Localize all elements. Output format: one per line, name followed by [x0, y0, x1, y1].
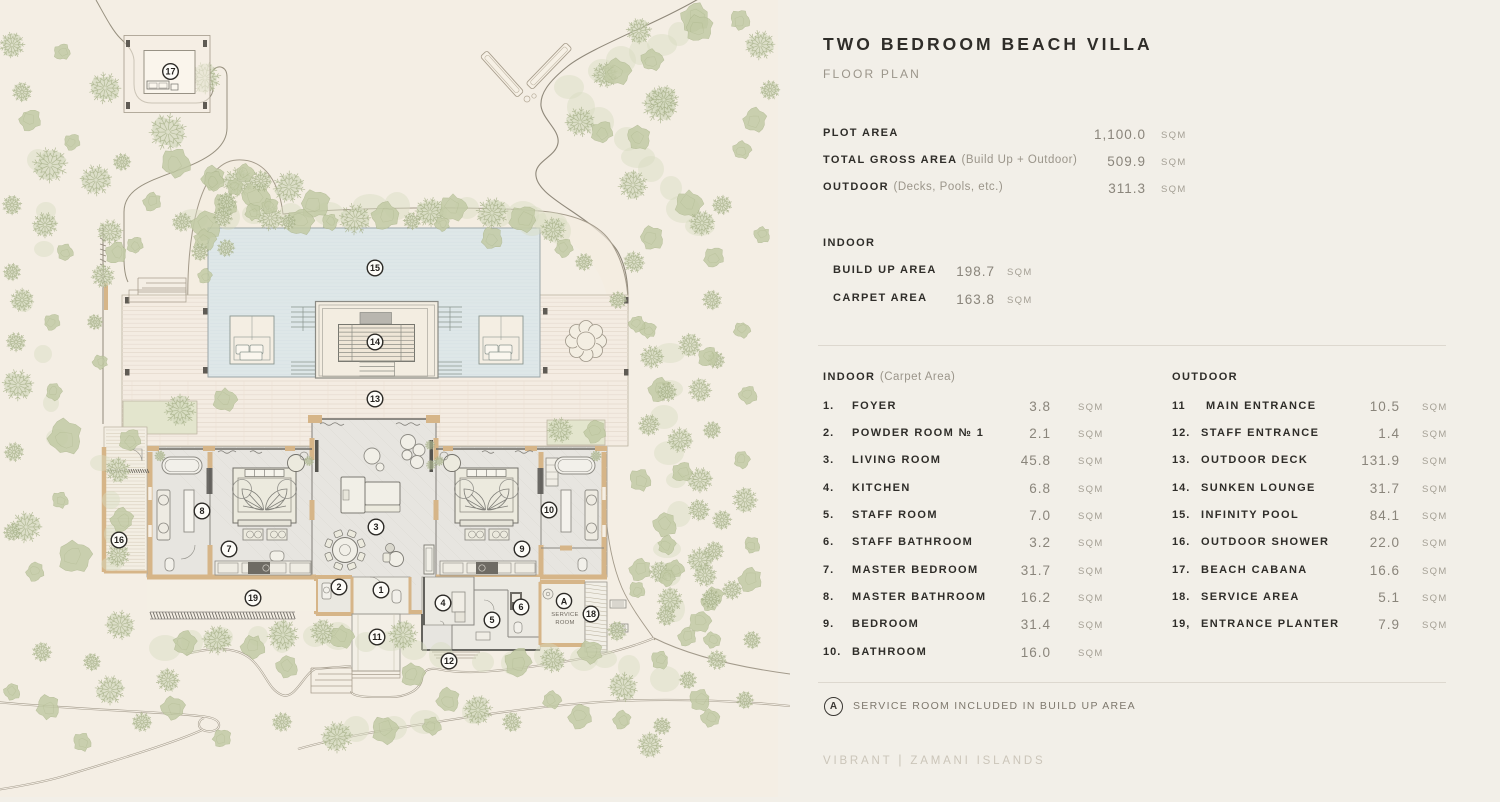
svg-text:3: 3	[373, 522, 378, 532]
svg-text:14: 14	[370, 337, 380, 347]
svg-text:4: 4	[440, 598, 445, 608]
svg-text:17: 17	[165, 67, 175, 77]
svg-text:13: 13	[370, 394, 380, 404]
svg-text:19: 19	[248, 593, 258, 603]
svg-text:15: 15	[370, 263, 380, 273]
svg-text:6: 6	[518, 602, 523, 612]
svg-text:10: 10	[544, 505, 554, 515]
svg-text:11: 11	[372, 632, 382, 642]
svg-text:ROOM: ROOM	[555, 620, 574, 626]
svg-text:1: 1	[378, 585, 383, 595]
svg-text:16: 16	[114, 535, 124, 545]
svg-text:8: 8	[199, 506, 204, 516]
svg-text:SERVICE: SERVICE	[551, 612, 578, 618]
svg-text:5: 5	[489, 615, 494, 625]
svg-text:12: 12	[444, 656, 454, 666]
svg-text:2: 2	[336, 582, 341, 592]
svg-text:18: 18	[586, 609, 596, 619]
svg-text:9: 9	[519, 544, 524, 554]
svg-text:7: 7	[226, 544, 231, 554]
svg-text:A: A	[561, 597, 568, 607]
